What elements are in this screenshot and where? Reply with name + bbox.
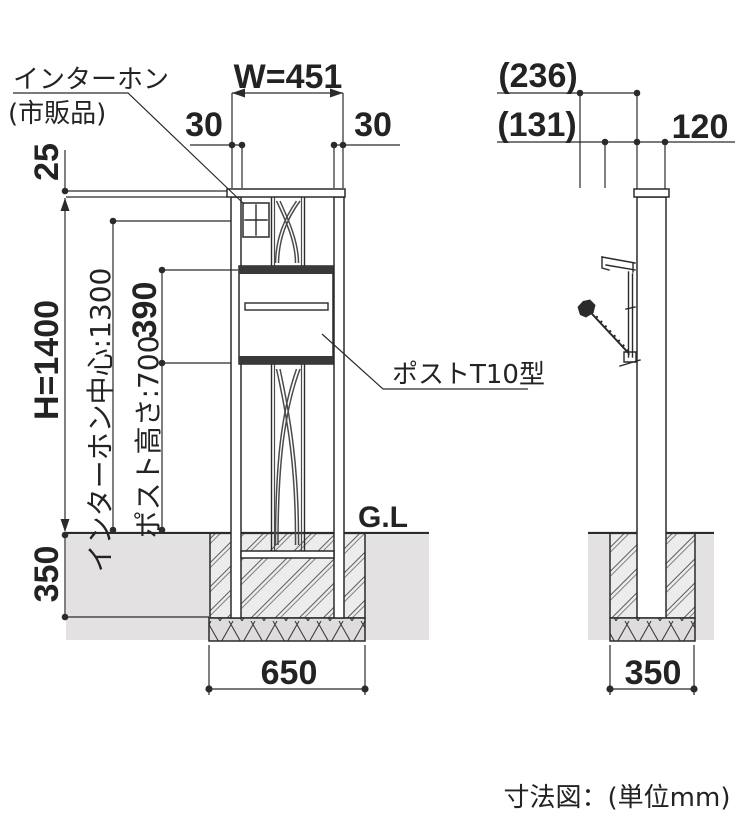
dimension-drawing: インターホン (市販品) W=451 30 30 25 H=1400 インターホ… [0,0,740,834]
intercom-label-line1: インターホン [13,65,169,95]
decorative-panel [272,197,305,551]
post-type-label: ポストT10型 [392,360,545,390]
ground-line-label: G.L [358,501,408,534]
dim-intercom-center-label: インターホン中心:1300 [84,268,117,573]
intercom-label-line2: (市販品) [8,99,106,129]
front-structure [227,189,345,618]
side-gravel-layer [610,618,695,641]
drawing-svg: インターホン (市販品) W=451 30 30 25 H=1400 インターホ… [0,0,740,834]
dim-box-depth-label: (131) [497,106,576,144]
panel-ornament [276,201,301,545]
front-lower-crossbar [241,551,334,558]
side-pillar [637,197,666,618]
side-soil-right [695,535,714,640]
dim-pillar-depth-label: 120 [672,108,729,146]
front-cap-beam [227,189,345,197]
intercom-box [243,203,269,237]
dim-footing-width-label: 650 [261,654,318,692]
dim-overall-depth-label: (236) [498,57,577,95]
mailbox-bottom-band [239,356,333,364]
dim-side-footing-width-label: 350 [625,654,682,692]
dim-total-height-label: H=1400 [28,300,66,420]
dim-post-height-label: ポスト高さ:700 [132,336,165,539]
side-view [497,90,735,695]
front-post-right [334,197,344,618]
dim-embed-depth-label: 350 [28,546,66,603]
dim-margin-right-label: 30 [354,106,392,144]
front-soil-right [364,535,429,640]
side-soil-left [588,535,610,640]
dim-margin-left-label: 30 [185,106,223,144]
dim-post-box-height-label: 390 [126,282,164,339]
dim-cap-offset-label: 25 [28,143,66,181]
front-post-left [231,197,241,618]
side-mailbox-bracket [578,257,641,366]
mailbox [239,266,333,364]
side-pillar-cap [634,189,669,197]
dim-width-label: W=451 [234,58,343,96]
mailbox-top-band [239,266,333,274]
footer-caption: 寸法図：(単位mm) [504,783,731,813]
